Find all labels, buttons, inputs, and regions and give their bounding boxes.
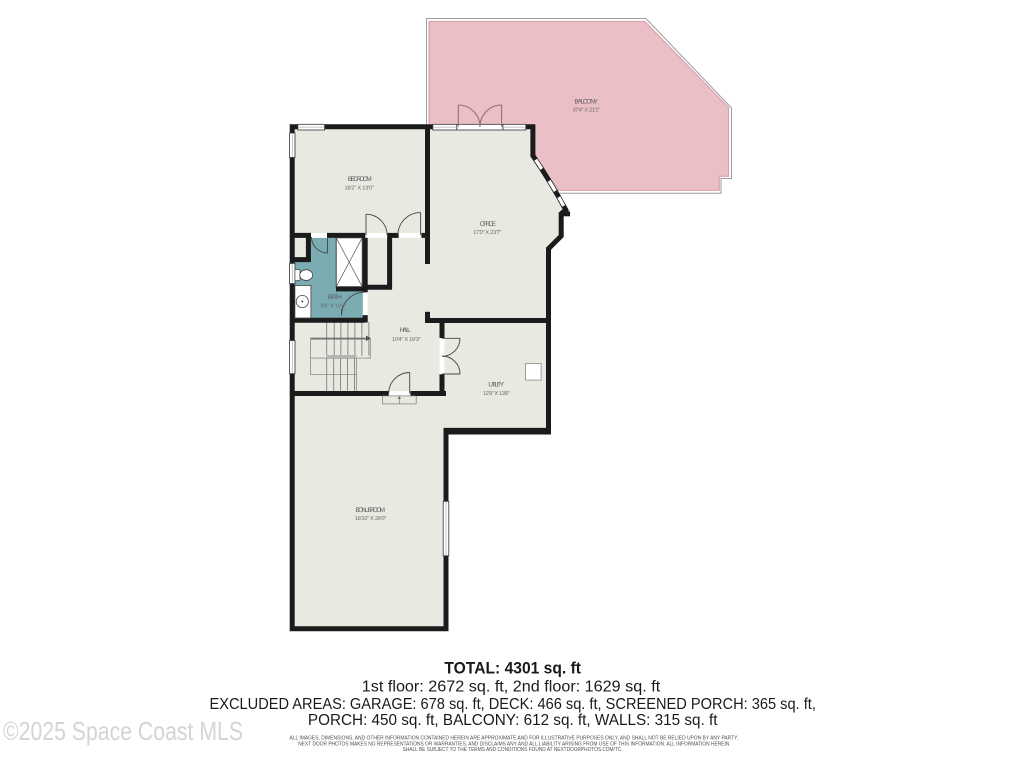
svg-text:OFFICE: OFFICE	[480, 221, 497, 228]
svg-text:UTILITY: UTILITY	[488, 382, 504, 389]
svg-text:©2025 Space Coast MLS: ©2025 Space Coast MLS	[3, 716, 243, 746]
svg-text:17'0" X 23'7": 17'0" X 23'7"	[473, 230, 501, 236]
svg-text:8'5" X 10'0": 8'5" X 10'0"	[321, 304, 347, 310]
svg-text:PORCH: 450 sq. ft, BALCONY: 61: PORCH: 450 sq. ft, BALCONY: 612 sq. ft, …	[308, 712, 718, 729]
svg-text:BALCONY: BALCONY	[574, 99, 598, 106]
svg-text:HALL: HALL	[400, 327, 412, 334]
svg-text:EXCLUDED AREAS: GARAGE: 678 sq: EXCLUDED AREAS: GARAGE: 678 sq. ft, DECK…	[210, 696, 816, 713]
svg-text:37'4" X 21'1": 37'4" X 21'1"	[572, 107, 600, 113]
svg-text:1st floor: 2672 sq. ft, 2nd fl: 1st floor: 2672 sq. ft, 2nd floor: 1629 …	[362, 679, 661, 696]
svg-text:16'2" X 13'0": 16'2" X 13'0"	[345, 186, 375, 192]
svg-text:SHALL BE SUBJECT TO THE TERMS: SHALL BE SUBJECT TO THE TERMS AND CONDIT…	[403, 747, 623, 753]
svg-text:BONUS ROOM: BONUS ROOM	[356, 507, 386, 514]
svg-text:10'4" X 19'3": 10'4" X 19'3"	[392, 337, 421, 343]
svg-text:18'10" X 29'0": 18'10" X 29'0"	[355, 516, 387, 522]
svg-text:12'9" X 13'6": 12'9" X 13'6"	[483, 391, 510, 397]
svg-text:TOTAL: 4301 sq. ft: TOTAL: 4301 sq. ft	[444, 660, 581, 678]
svg-text:BEDROOM: BEDROOM	[348, 176, 372, 183]
svg-text:BATH: BATH	[328, 294, 342, 301]
